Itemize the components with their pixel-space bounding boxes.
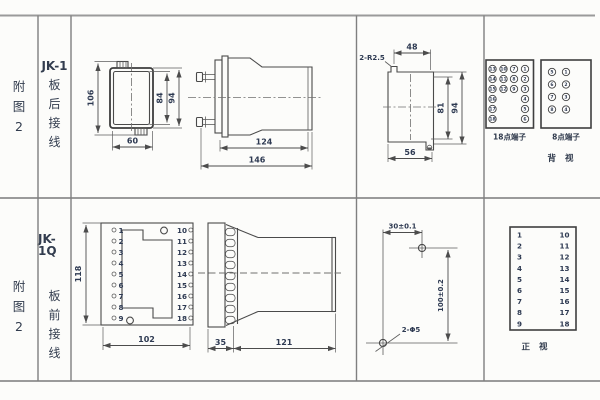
terminal-circle: 6 — [521, 115, 528, 122]
svg-text:10: 10 — [177, 226, 187, 235]
terminal-screws — [226, 228, 236, 323]
svg-text:1: 1 — [119, 226, 124, 235]
svg-text:14: 14 — [177, 270, 187, 279]
rear-front-view-drawing: 106 84 94 60 — [87, 62, 183, 151]
svg-text:18: 18 — [177, 314, 187, 323]
terminal-circle: 2 — [521, 75, 528, 82]
svg-text:7: 7 — [550, 95, 553, 101]
front-front-view-drawing: 1 2 3 4 5 6 7 8 9 10 11 12 13 14 15 16 1… — [74, 223, 193, 350]
svg-text:11: 11 — [500, 77, 506, 83]
svg-text:5: 5 — [119, 270, 124, 279]
terminal-circle: 7 — [510, 65, 517, 72]
terminal-circle: 14 — [489, 75, 496, 82]
svg-text:10: 10 — [500, 67, 506, 73]
svg-text:16: 16 — [559, 297, 569, 306]
table-left-column: 1 2 3 4 5 6 7 8 9 — [517, 231, 522, 329]
svg-text:3: 3 — [517, 253, 522, 262]
terminal-circle: 6 — [548, 81, 555, 88]
terminal-circle: 8 — [510, 75, 517, 82]
svg-text:12: 12 — [559, 253, 569, 262]
svg-text:8: 8 — [550, 107, 553, 113]
dim-35-label: 35 — [215, 338, 227, 347]
svg-text:6: 6 — [523, 117, 526, 123]
dim-146-label: 146 — [249, 156, 266, 165]
terminal-circle: 2 — [562, 81, 569, 88]
svg-text:17: 17 — [177, 303, 187, 312]
svg-text:4: 4 — [517, 264, 522, 273]
svg-text:2: 2 — [517, 242, 522, 251]
dim-121-label: 121 — [276, 338, 293, 347]
svg-text:13: 13 — [177, 259, 187, 268]
dim-118-label: 118 — [74, 265, 83, 282]
terminal-circle: 3 — [562, 93, 569, 100]
terminal-circle: 3 — [521, 85, 528, 92]
mounting-tab-bottom — [135, 128, 147, 135]
terminal-circle: 9 — [510, 85, 517, 92]
front-view-label: 正 视 — [522, 342, 551, 353]
panel-cutout-drawing: 48 2-R2.5 81 94 56 — [359, 43, 466, 163]
svg-text:12: 12 — [177, 248, 187, 257]
svg-text:11: 11 — [559, 242, 569, 251]
svg-text:17: 17 — [489, 107, 495, 113]
svg-text:7: 7 — [119, 292, 124, 301]
terminal-circle: 1 — [562, 68, 569, 75]
svg-text:18: 18 — [489, 117, 495, 123]
terminal-circle: 17 — [489, 105, 496, 112]
rear-side-view-drawing: 124 146 — [188, 56, 322, 170]
svg-text:9: 9 — [517, 319, 522, 328]
svg-text:2: 2 — [523, 77, 526, 83]
hole-diameter-label: 2-Φ5 — [402, 326, 421, 334]
svg-text:5: 5 — [517, 275, 522, 284]
svg-text:3: 3 — [564, 95, 567, 101]
svg-text:6: 6 — [550, 82, 553, 88]
svg-text:7: 7 — [517, 297, 522, 306]
dim-94b-label: 94 — [451, 102, 460, 114]
svg-text:4: 4 — [523, 97, 526, 103]
svg-text:1: 1 — [517, 231, 522, 240]
svg-text:15: 15 — [177, 281, 187, 290]
dim-100-label: 100±0.2 — [437, 279, 445, 312]
stud-top — [197, 72, 216, 83]
terminal-circle: 10 — [500, 65, 507, 72]
svg-text:18: 18 — [559, 319, 569, 328]
rear-view-label: 背 视 — [548, 153, 577, 164]
svg-text:2: 2 — [564, 82, 567, 88]
terminal-circle: 4 — [562, 106, 569, 113]
terminal-circle: 15 — [489, 85, 496, 92]
svg-text:6: 6 — [119, 281, 124, 290]
diagram-page: 附 图 2 JK-1 板 后 接 线 附 图 2 JK-1Q 板 前 接 线 — [0, 0, 600, 400]
svg-text:13: 13 — [489, 67, 495, 73]
terminal-circle: 5 — [548, 68, 555, 75]
svg-text:5: 5 — [550, 70, 553, 76]
terminal-circle: 12 — [500, 85, 507, 92]
svg-text:1: 1 — [564, 70, 567, 76]
front-terminals-right: 10 11 12 13 14 15 16 17 18 — [177, 226, 193, 323]
front-side-view-drawing: 35 121 — [198, 223, 341, 353]
terminal-circle: 18 — [489, 115, 496, 122]
terminal-8pt-label: 8点端子 — [552, 132, 580, 142]
dim-56-label: 56 — [404, 148, 416, 157]
svg-text:3: 3 — [523, 87, 526, 93]
svg-text:8: 8 — [512, 77, 515, 83]
dim-124-label: 124 — [256, 138, 273, 147]
drawing-layer: 106 84 94 60 — [0, 0, 600, 400]
slot-radius-label: 2-R2.5 — [359, 54, 385, 62]
svg-text:4: 4 — [119, 259, 124, 268]
terminal-18pt-label: 18点端子 — [493, 132, 526, 142]
terminal-circle: 13 — [489, 65, 496, 72]
svg-text:14: 14 — [489, 77, 495, 83]
svg-text:8: 8 — [517, 308, 522, 317]
svg-text:8: 8 — [119, 303, 124, 312]
dim-102-label: 102 — [138, 335, 155, 344]
front-terminals-left: 1 2 3 4 5 6 7 8 9 — [112, 226, 124, 323]
svg-text:14: 14 — [559, 275, 569, 284]
svg-text:13: 13 — [559, 264, 569, 273]
terminal-8pt-box: 5 6 7 8 1 2 3 4 8点端子 — [541, 60, 591, 142]
terminal-circle: 5 — [521, 105, 528, 112]
dim-30-label: 30±0.1 — [388, 223, 416, 231]
svg-text:4: 4 — [564, 107, 567, 113]
table-right-column: 10 11 12 13 14 15 16 17 18 — [559, 231, 569, 329]
svg-text:17: 17 — [559, 308, 569, 317]
svg-text:15: 15 — [559, 286, 569, 295]
svg-text:5: 5 — [523, 107, 526, 113]
svg-text:2: 2 — [119, 237, 124, 246]
svg-text:11: 11 — [177, 237, 187, 246]
terminal-circle: 16 — [489, 95, 496, 102]
terminal-18pt-box: 13 14 15 16 17 18 10 11 12 7 8 9 1 2 3 4… — [486, 60, 534, 142]
front-terminal-table: 1 2 3 4 5 6 7 8 9 10 11 12 13 14 15 16 1… — [510, 227, 576, 353]
svg-text:12: 12 — [500, 87, 506, 93]
svg-text:9: 9 — [119, 314, 124, 323]
terminal-circle: 7 — [548, 93, 555, 100]
dim-60-label: 60 — [127, 137, 139, 146]
terminal-circle: 1 — [521, 65, 528, 72]
svg-text:10: 10 — [559, 231, 569, 240]
svg-text:7: 7 — [512, 67, 515, 73]
drilling-plan-drawing: 30±0.1 100±0.2 2-Φ5 — [366, 223, 458, 356]
dim-94-label: 94 — [168, 92, 177, 104]
dim-48-label: 48 — [406, 43, 418, 52]
dim-81-label: 81 — [437, 102, 446, 114]
stud-bottom — [197, 117, 216, 128]
svg-text:6: 6 — [517, 286, 522, 295]
svg-text:3: 3 — [119, 248, 124, 257]
terminal-circle: 8 — [548, 106, 555, 113]
mounting-tab-top — [117, 62, 128, 69]
dim-84-label: 84 — [156, 92, 165, 104]
terminal-circle: 4 — [521, 95, 528, 102]
terminal-circle: 11 — [500, 75, 507, 82]
svg-text:1: 1 — [523, 67, 526, 73]
svg-text:9: 9 — [512, 87, 515, 93]
svg-text:16: 16 — [177, 292, 187, 301]
svg-text:16: 16 — [489, 97, 495, 103]
svg-text:15: 15 — [489, 87, 495, 93]
dim-106-label: 106 — [87, 89, 96, 106]
